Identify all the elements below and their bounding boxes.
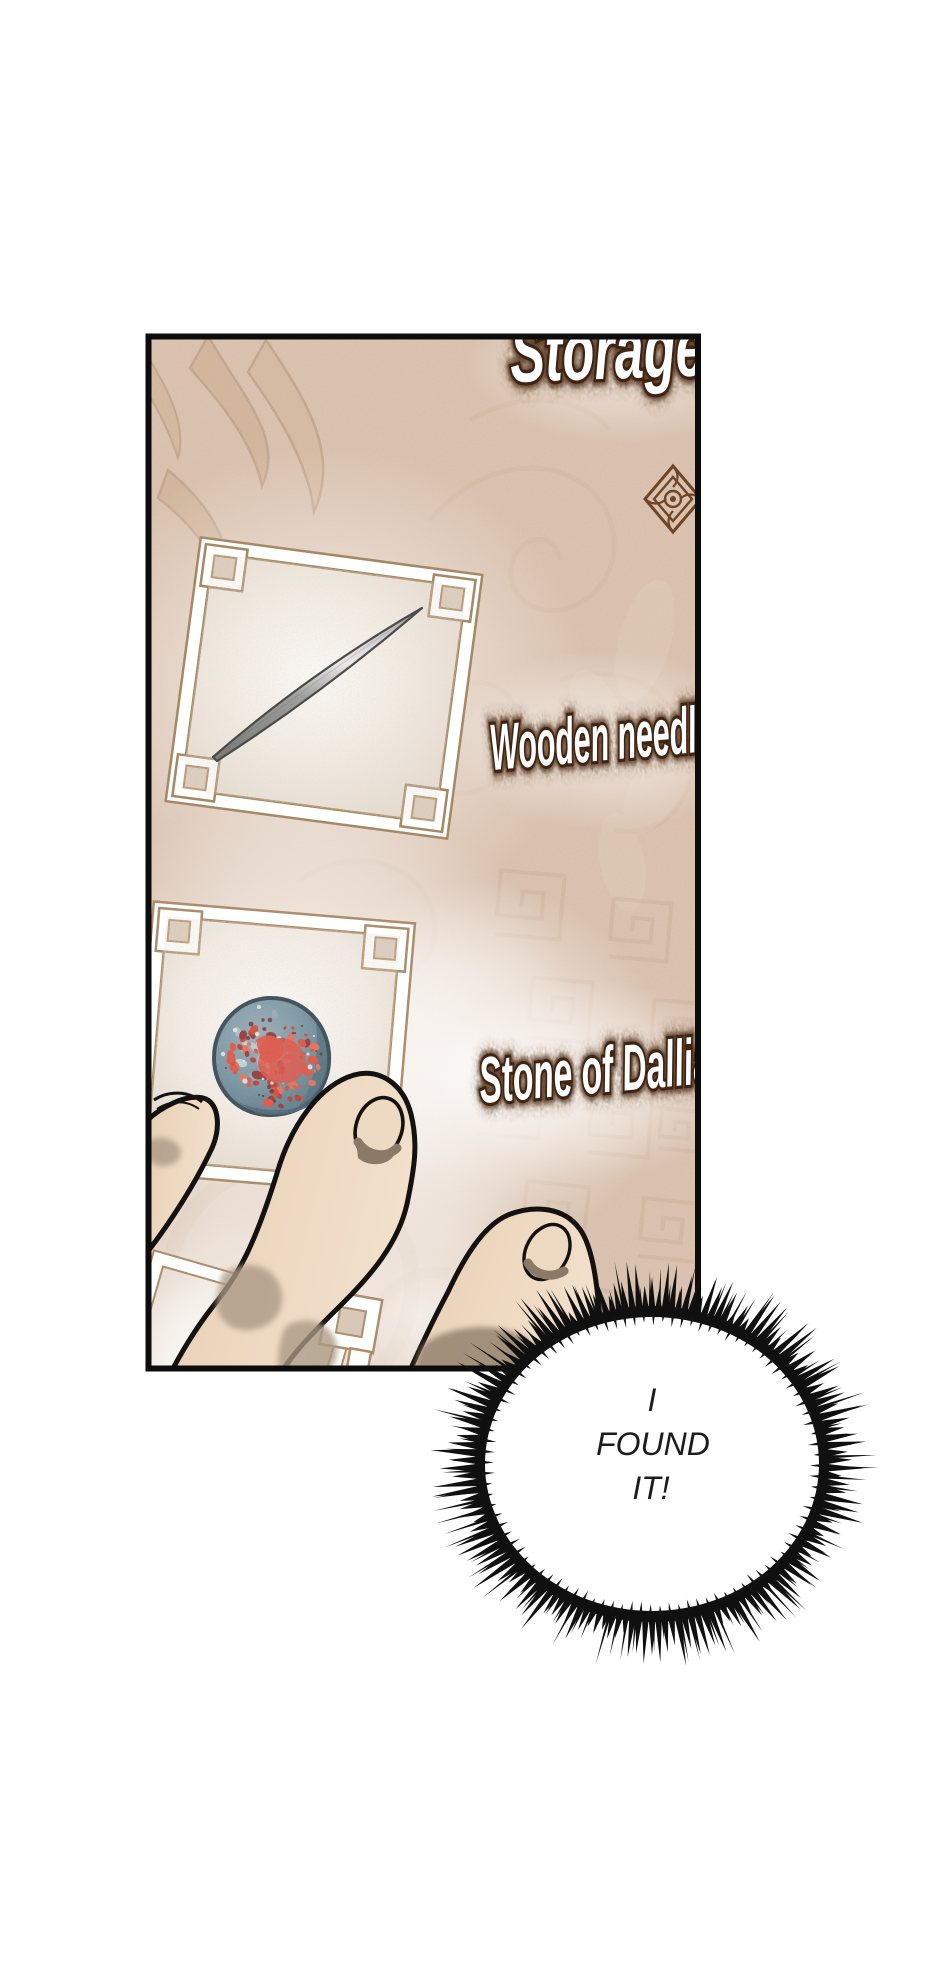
svg-text:FOUND: FOUND <box>596 1426 710 1462</box>
svg-text:IT!: IT! <box>632 1470 669 1506</box>
svg-text:I: I <box>648 1382 657 1418</box>
